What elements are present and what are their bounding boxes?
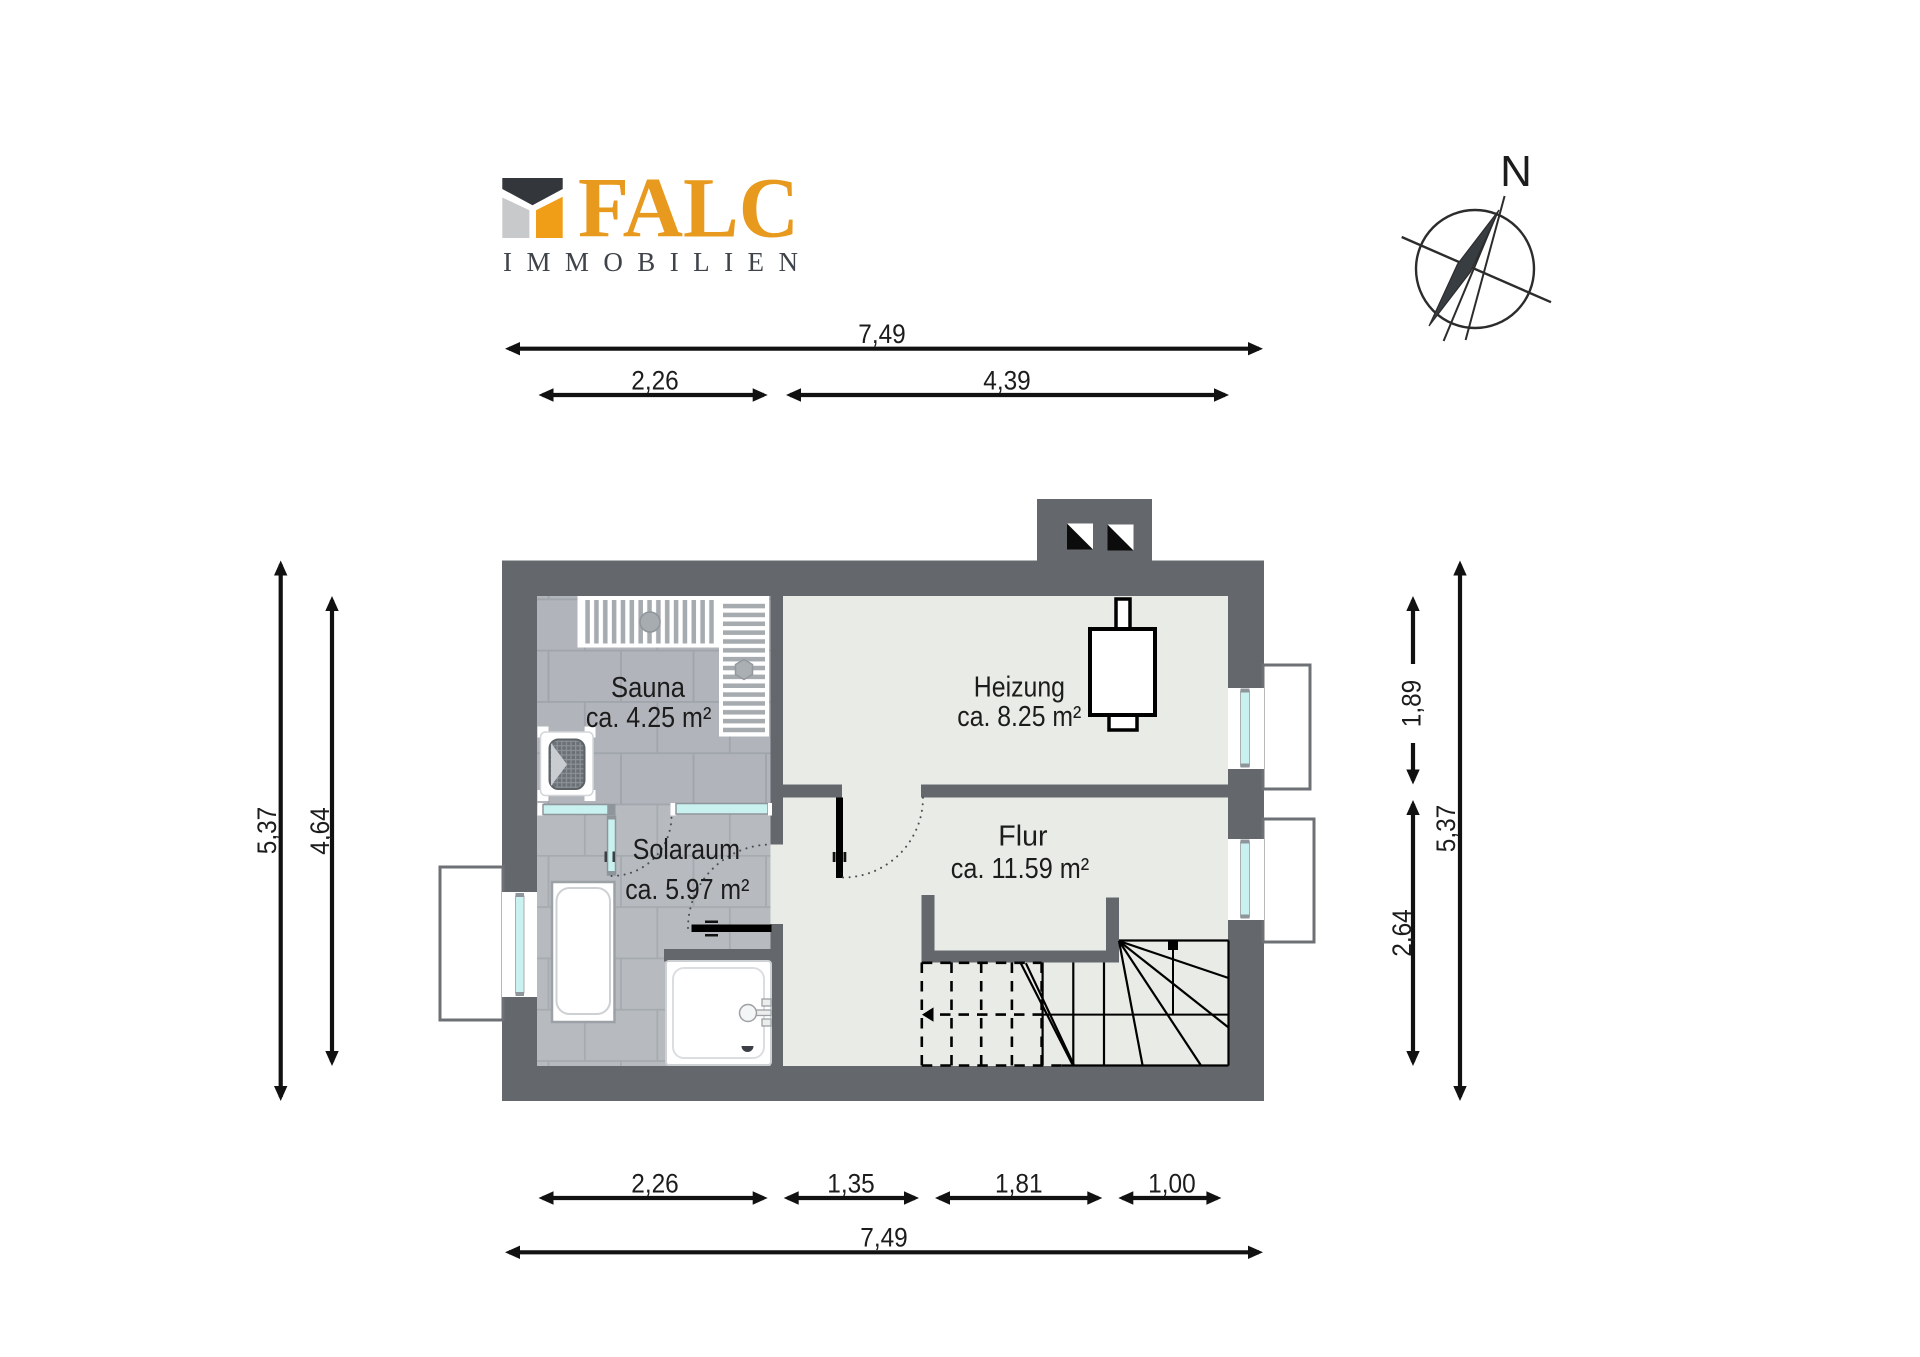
svg-text:1,35: 1,35 bbox=[827, 1169, 875, 1199]
svg-text:ca. 5.97 m²: ca. 5.97 m² bbox=[625, 874, 749, 906]
svg-text:ca. 8.25 m²: ca. 8.25 m² bbox=[957, 701, 1081, 733]
svg-text:2,26: 2,26 bbox=[631, 366, 679, 396]
svg-text:5,37: 5,37 bbox=[252, 807, 282, 855]
svg-text:4,39: 4,39 bbox=[983, 366, 1031, 396]
svg-text:5,37: 5,37 bbox=[1431, 805, 1461, 853]
svg-text:Heizung: Heizung bbox=[974, 672, 1065, 704]
svg-text:1,89: 1,89 bbox=[1397, 680, 1427, 728]
svg-text:7,49: 7,49 bbox=[858, 319, 906, 349]
svg-text:ca. 11.59 m²: ca. 11.59 m² bbox=[951, 853, 1089, 885]
svg-text:2,64: 2,64 bbox=[1387, 909, 1417, 957]
svg-text:4,64: 4,64 bbox=[305, 807, 335, 855]
svg-text:IMMOBILIEN: IMMOBILIEN bbox=[503, 247, 798, 277]
svg-text:1,81: 1,81 bbox=[995, 1169, 1043, 1199]
svg-text:FALC: FALC bbox=[578, 160, 799, 256]
svg-text:N: N bbox=[1500, 147, 1532, 196]
svg-text:1,00: 1,00 bbox=[1148, 1169, 1196, 1199]
svg-text:Sauna: Sauna bbox=[611, 672, 685, 704]
svg-text:ca. 4.25 m²: ca. 4.25 m² bbox=[586, 702, 711, 734]
svg-text:7,49: 7,49 bbox=[860, 1223, 908, 1253]
svg-text:Solaraum: Solaraum bbox=[633, 834, 740, 866]
svg-text:2,26: 2,26 bbox=[631, 1169, 679, 1199]
svg-text:Flur: Flur bbox=[998, 820, 1048, 852]
